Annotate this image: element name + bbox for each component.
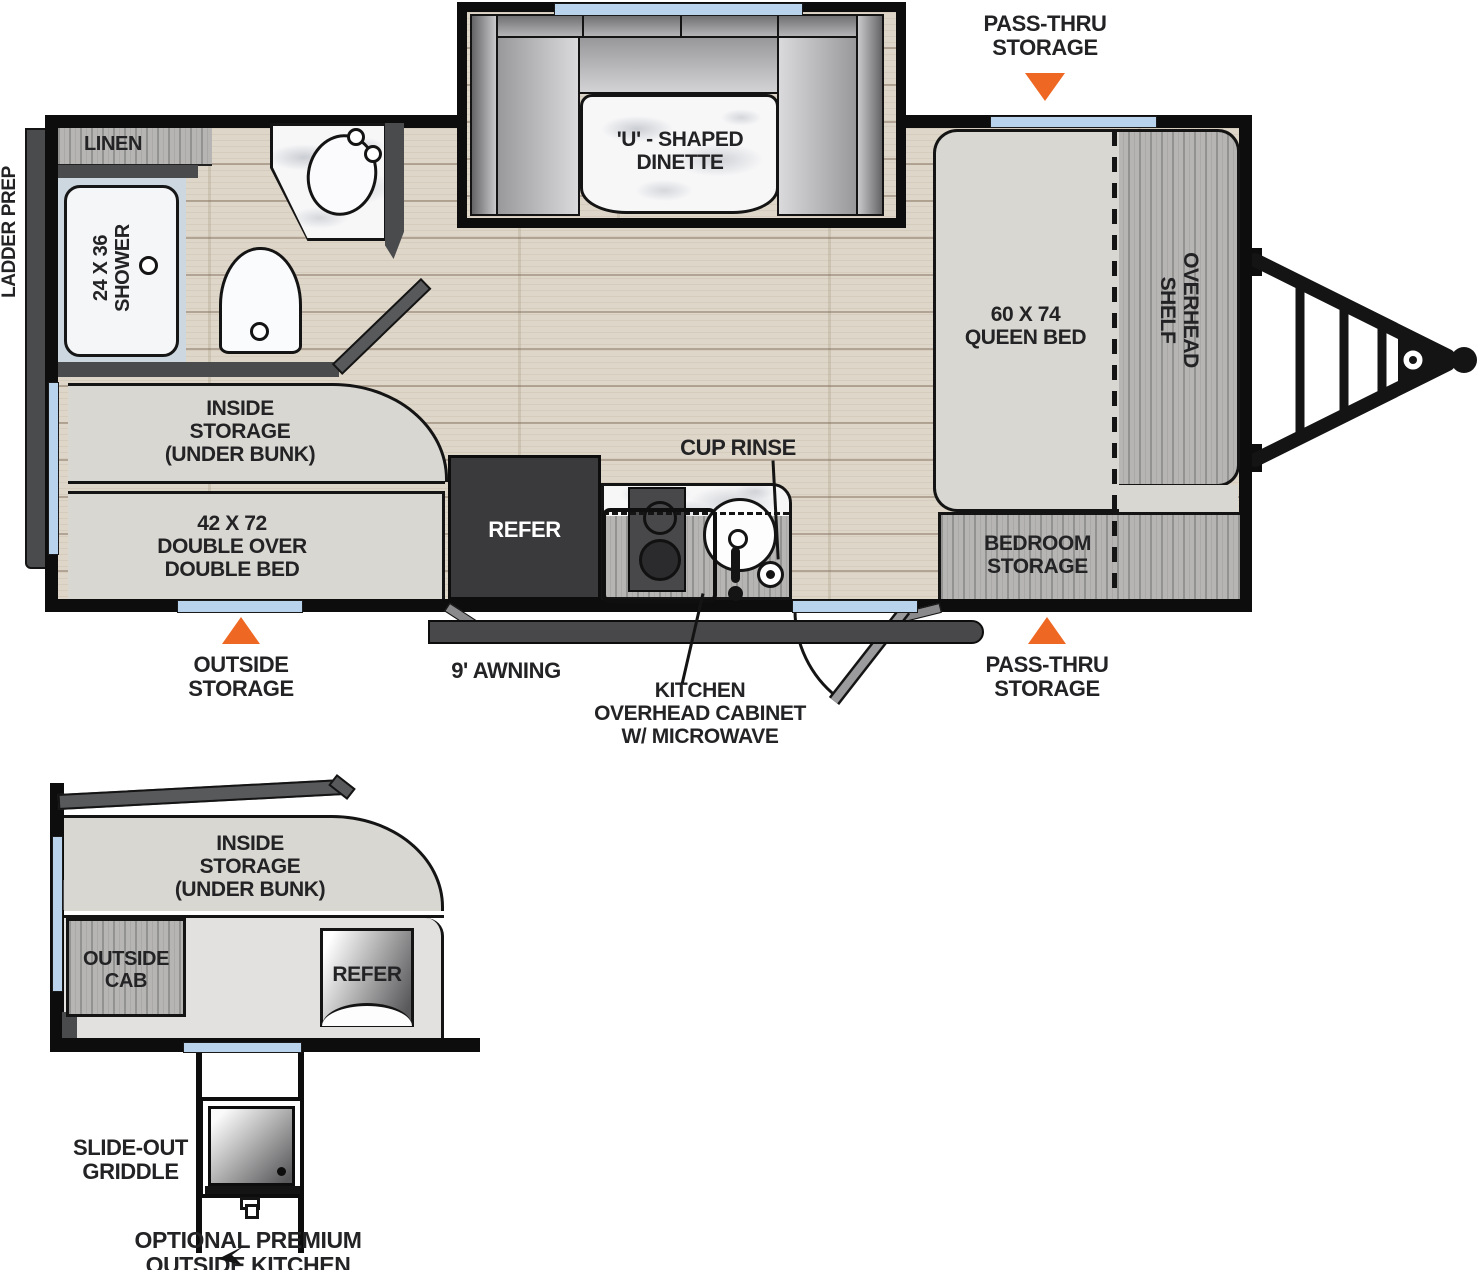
dinette-seat-back-top — [496, 14, 884, 38]
seat-seam — [582, 16, 584, 36]
mini-refer: REFER — [320, 928, 414, 1027]
bunk-divider — [68, 481, 445, 494]
dinette-cushion-top — [578, 36, 779, 94]
sink-faucet-dot — [728, 586, 743, 601]
bunk-window — [177, 600, 303, 613]
hitch-ball — [1451, 347, 1477, 373]
dinette-label: 'U' - SHAPED DINETTE — [558, 128, 802, 174]
outside-kitchen-caption: OPTIONAL PREMIUM OUTSIDE KITCHEN — [128, 1228, 368, 1270]
rv-floorplan-diagram: LADDER PREP LINEN 24 X 36 SHOWER — [0, 0, 1477, 1270]
ladder-prep-label: LADDER PREP — [0, 157, 22, 307]
slide-out-griddle-label: SLIDE-OUT GRIDDLE — [58, 1136, 203, 1184]
bedroom-window — [990, 116, 1157, 128]
mini-inside-storage-label: INSIDE STORAGE (UNDER BUNK) — [138, 832, 362, 901]
bed-shelf-dashed-line — [1112, 131, 1117, 599]
griddle-front-bar — [205, 1186, 300, 1194]
outside-storage-label: OUTSIDE STORAGE — [166, 653, 316, 701]
pass-thru-bottom-label: PASS-THRU STORAGE — [957, 653, 1137, 701]
jack-bolt — [1411, 371, 1416, 376]
trailer-hitch — [1252, 240, 1477, 480]
awning-label: 9' AWNING — [440, 659, 572, 683]
pass-thru-top-label: PASS-THRU STORAGE — [955, 12, 1135, 60]
toilet-drain — [250, 322, 269, 341]
cup-rinse-dot — [766, 570, 775, 579]
double-bed-label: 42 X 72 DOUBLE OVER DOUBLE BED — [120, 512, 344, 581]
pass-thru-bottom-arrow — [1028, 617, 1066, 644]
seat-seam — [777, 16, 779, 36]
mini-bottom-window — [183, 1042, 302, 1053]
left-side-window — [48, 382, 59, 555]
faucet-dot-1 — [347, 128, 365, 146]
bathroom-wall-under-linen — [58, 165, 198, 178]
cursor-artifact-icon — [218, 1246, 246, 1266]
cup-rinse-fixture — [757, 561, 784, 588]
awning-bar — [428, 620, 984, 644]
mini-top-bar-tip — [328, 774, 356, 800]
shower-label: 24 X 36 SHOWER — [90, 183, 134, 353]
sink-faucet-ring — [728, 529, 748, 549]
queen-bed-label: 60 X 74 QUEEN BED — [958, 303, 1093, 349]
faucet-dot-2 — [364, 145, 382, 163]
griddle-surface — [208, 1106, 295, 1186]
seat-seam — [680, 16, 682, 36]
griddle-handle-foot — [245, 1204, 259, 1219]
mini-left-window — [52, 836, 63, 992]
mini-outside-cab-label: OUTSIDE CAB — [68, 948, 184, 992]
bedroom-storage-label: BEDROOM STORAGE — [955, 532, 1120, 578]
jack-bolt — [1422, 350, 1427, 355]
refer-label: REFER — [451, 518, 598, 542]
sink-faucet-handle — [731, 547, 740, 583]
entry-door-window — [792, 600, 918, 613]
inside-storage-label: INSIDE STORAGE (UNDER BUNK) — [128, 397, 352, 466]
dinette-cushion-left — [496, 36, 580, 216]
dinette-seat-back-left — [470, 14, 498, 216]
mini-refer-curve — [322, 1003, 412, 1026]
bathroom-partition-wall — [385, 123, 404, 259]
jack-bolt — [1400, 350, 1405, 355]
refrigerator: REFER — [448, 455, 601, 600]
dinette-seat-back-right — [856, 14, 884, 216]
outside-storage-arrow — [222, 617, 260, 644]
dinette-cushion-right — [777, 36, 858, 216]
mini-refer-label: REFER — [323, 963, 411, 986]
dinette-window — [554, 3, 803, 16]
kitchen-cabinet-label: KITCHEN OVERHEAD CABINET W/ MICROWAVE — [585, 679, 815, 748]
overhead-shelf-label: OVERHEAD SHELF — [1158, 235, 1202, 385]
bathroom-south-wall — [58, 362, 339, 377]
cup-rinse-label: CUP RINSE — [668, 436, 808, 460]
bed-platform-gap — [1117, 485, 1238, 512]
shower-drain — [139, 256, 158, 275]
toilet — [219, 247, 302, 354]
hitch-jack-center — [1409, 356, 1417, 364]
mini-top-bar — [58, 779, 344, 810]
pass-thru-top-arrow — [1025, 73, 1065, 101]
overhead-cabinet-outline — [602, 508, 717, 603]
griddle-knob — [277, 1167, 286, 1176]
linen-label: LINEN — [62, 133, 164, 155]
